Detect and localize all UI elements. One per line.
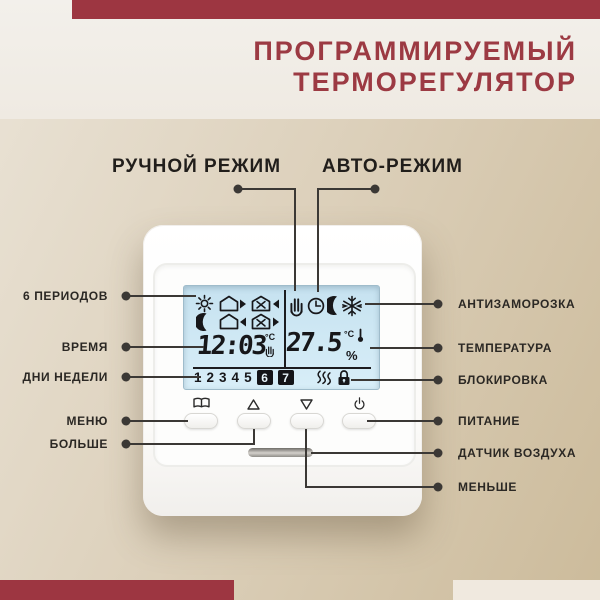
callout-power: ПИТАНИЕ xyxy=(458,414,520,428)
thermometer-icon xyxy=(357,328,364,343)
work-arrive-icon xyxy=(248,295,281,312)
temperature-unit: °C xyxy=(344,329,354,339)
page-title-line2: ТЕРМОРЕГУЛЯТОР xyxy=(253,67,577,98)
callout-antifreeze: АНТИЗАМОРОЗКА xyxy=(458,297,575,311)
infographic-canvas: ПРОГРАММИРУЕМЫЙ ТЕРМОРЕГУЛЯТОР РУЧНОЙ РЕ… xyxy=(0,0,600,600)
work-leave-icon xyxy=(248,313,281,330)
temperature-display: 27.5 xyxy=(285,330,342,356)
callout-weekdays: ДНИ НЕДЕЛИ xyxy=(23,370,108,384)
house-return-icon xyxy=(218,313,247,330)
weekday-7-active: 7 xyxy=(278,370,294,385)
up-button xyxy=(237,413,271,429)
top-red-accent-bar xyxy=(72,0,600,19)
up-triangle-icon xyxy=(247,399,260,410)
moon-period-icon xyxy=(196,312,211,332)
weekday-4: 4 xyxy=(232,370,240,385)
down-button xyxy=(290,413,324,429)
weekday-6-active: 6 xyxy=(257,370,273,385)
time-display: 12:03 xyxy=(196,333,267,359)
time-unit: °C xyxy=(265,332,275,342)
power-icon xyxy=(353,397,366,410)
callout-more: БОЛЬШЕ xyxy=(50,437,108,451)
menu-button xyxy=(184,413,218,429)
heating-waves-icon xyxy=(316,370,332,385)
callout-temperature: ТЕМПЕРАТУРА xyxy=(458,341,552,355)
manual-mode-label: РУЧНОЙ РЕЖИМ xyxy=(112,156,281,178)
callout-lock: БЛОКИРОВКА xyxy=(458,373,548,387)
page-title-line1: ПРОГРАММИРУЕМЫЙ xyxy=(253,36,577,67)
small-hand-icon xyxy=(264,344,275,357)
percent-sign: % xyxy=(346,348,358,363)
down-triangle-icon xyxy=(300,399,313,410)
hand-manual-icon xyxy=(288,295,305,317)
callout-less: МЕНЬШЕ xyxy=(458,480,517,494)
page-title: ПРОГРАММИРУЕМЫЙ ТЕРМОРЕГУЛЯТОР xyxy=(253,36,577,98)
clock-auto-icon xyxy=(307,297,325,315)
callout-6-periods: 6 ПЕРИОДОВ xyxy=(23,289,108,303)
weekday-2: 2 xyxy=(207,370,215,385)
thermostat-device: 12:03 °C 1 2 3 4 5 6 7 xyxy=(143,225,422,516)
sun-icon xyxy=(195,294,214,313)
house-leave-icon xyxy=(218,295,247,312)
bottom-light-accent-bar xyxy=(453,580,600,600)
lcd-screen: 12:03 °C 1 2 3 4 5 6 7 xyxy=(183,285,380,390)
weekday-5: 5 xyxy=(244,370,252,385)
auto-mode-label: АВТО-РЕЖИМ xyxy=(322,156,463,178)
lock-icon xyxy=(336,369,352,386)
bottom-red-accent-bar xyxy=(0,580,234,600)
power-button xyxy=(342,413,376,429)
moon-night-icon xyxy=(327,295,341,316)
weekday-1: 1 xyxy=(194,370,202,385)
menu-book-icon xyxy=(192,397,211,409)
air-sensor-slot xyxy=(248,448,313,457)
weekday-3: 3 xyxy=(219,370,227,385)
snowflake-antifreeze-icon xyxy=(341,295,363,317)
callout-time: ВРЕМЯ xyxy=(62,340,108,354)
callout-menu: МЕНЮ xyxy=(67,414,108,428)
weekday-row: 1 2 3 4 5 6 7 xyxy=(194,370,294,385)
callout-air-sensor: ДАТЧИК ВОЗДУХА xyxy=(458,446,576,460)
